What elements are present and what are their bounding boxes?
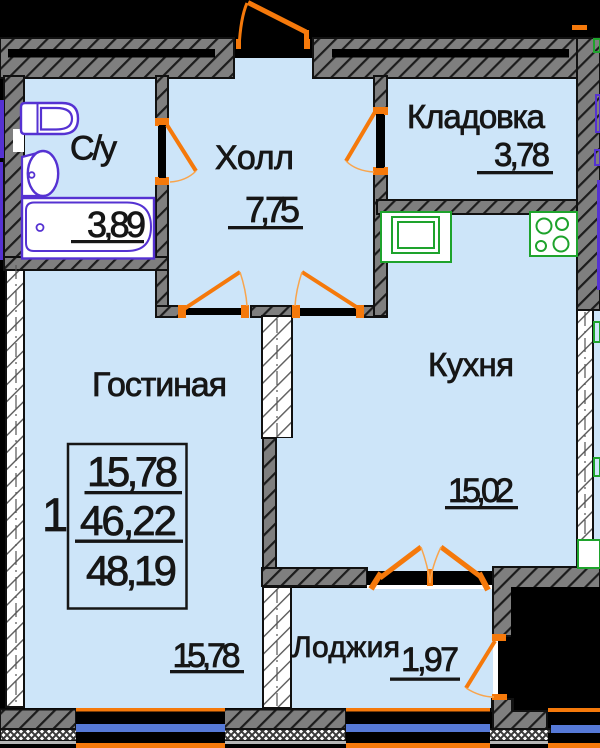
svg-text:Лоджия: Лоджия [292, 631, 400, 664]
svg-text:7,75: 7,75 [245, 189, 300, 230]
svg-text:15,78: 15,78 [173, 637, 241, 675]
svg-text:Гостиная: Гостиная [92, 366, 227, 404]
svg-text:Кладовка: Кладовка [407, 98, 546, 135]
svg-text:1,97: 1,97 [401, 641, 459, 679]
svg-text:С/у: С/у [70, 130, 117, 168]
svg-text:3,89: 3,89 [87, 204, 146, 245]
svg-text:15,02: 15,02 [448, 472, 514, 510]
svg-text:Кухня: Кухня [428, 346, 514, 383]
svg-text:3,78: 3,78 [494, 136, 550, 173]
svg-text:15,78: 15,78 [87, 448, 178, 495]
svg-text:46,22: 46,22 [80, 497, 177, 544]
svg-text:48,19: 48,19 [86, 547, 177, 594]
svg-text:1: 1 [42, 488, 68, 541]
svg-text:Холл: Холл [215, 139, 294, 177]
